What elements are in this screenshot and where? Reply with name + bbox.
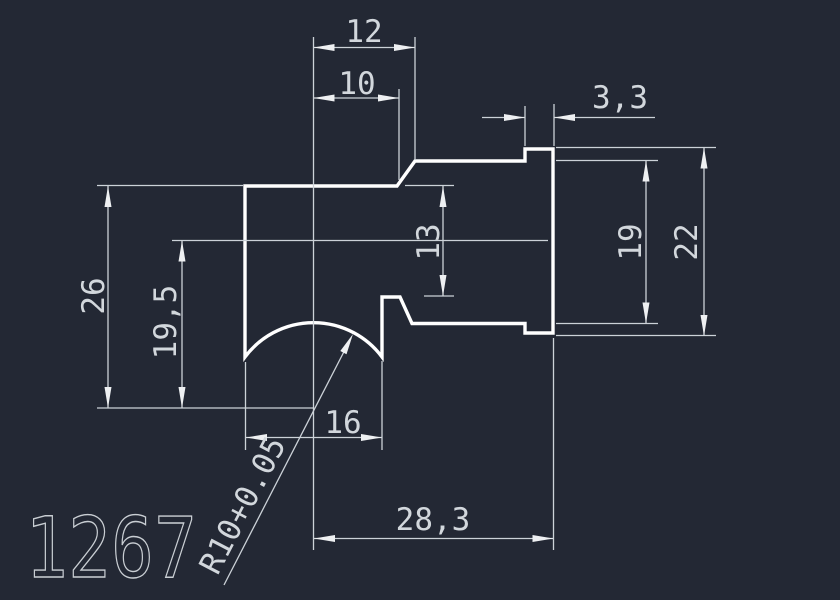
arrowhead-down <box>643 303 650 324</box>
dim-arc-radius-label: R10+0.05 <box>193 431 294 580</box>
dimension-boss-diameter: 19 <box>556 161 658 324</box>
dimension-step-height: 13 <box>405 186 454 297</box>
leader-line <box>224 338 351 585</box>
dimension-overall-length: 28,3 <box>314 338 554 550</box>
dimension-center-height: 19,5 <box>148 241 186 409</box>
arrowhead-pointing-left <box>554 114 575 121</box>
arrowhead-up <box>179 241 186 262</box>
cad-drawing-canvas[interactable]: 12 10 3,3 26 19,5 13 <box>0 0 840 600</box>
dim-top-width-label: 12 <box>345 14 382 50</box>
arrowhead-up <box>105 186 112 207</box>
dimension-top-width-inner: 10 <box>314 66 400 180</box>
arrowhead-down <box>701 315 708 336</box>
arrowhead-up <box>643 161 650 182</box>
arrowhead-right <box>533 535 554 542</box>
dim-flange-thickness-label: 3,3 <box>592 80 648 116</box>
arrowhead-up <box>701 148 708 169</box>
radius-leader: R10+0.05 <box>193 334 353 585</box>
part-number-label: 1267 <box>25 499 197 597</box>
dim-center-height-label: 19,5 <box>148 285 184 360</box>
arrowhead-pointing-right <box>504 114 525 121</box>
dim-overall-length-label: 28,3 <box>396 502 471 538</box>
arrowhead-down <box>440 275 447 296</box>
arrowhead-right <box>361 434 382 441</box>
dim-step-height-label: 13 <box>411 223 447 260</box>
arrowhead-down <box>179 387 186 408</box>
part-outline <box>245 149 553 357</box>
arrowhead-right <box>378 95 399 102</box>
arrowhead-left <box>314 44 335 51</box>
arrowhead-left <box>314 95 335 102</box>
cad-drawing-svg[interactable]: 12 10 3,3 26 19,5 13 <box>0 0 840 600</box>
arrowhead-left <box>314 535 335 542</box>
part-outline-group <box>245 149 553 357</box>
dim-flange-diameter-label: 22 <box>669 223 705 260</box>
dimension-flange-thickness: 3,3 <box>482 80 655 146</box>
arrowhead-right <box>394 44 415 51</box>
dim-overall-height-label: 26 <box>76 277 112 314</box>
arrowhead-down <box>105 387 112 408</box>
dim-bottom-width-label: 16 <box>324 405 361 441</box>
dim-boss-diameter-label: 19 <box>613 223 649 260</box>
dimension-overall-height: 26 <box>76 186 112 408</box>
arrowhead-up <box>440 186 447 207</box>
dim-top-width-inner-label: 10 <box>338 66 375 102</box>
leader-arrowhead <box>340 334 353 354</box>
